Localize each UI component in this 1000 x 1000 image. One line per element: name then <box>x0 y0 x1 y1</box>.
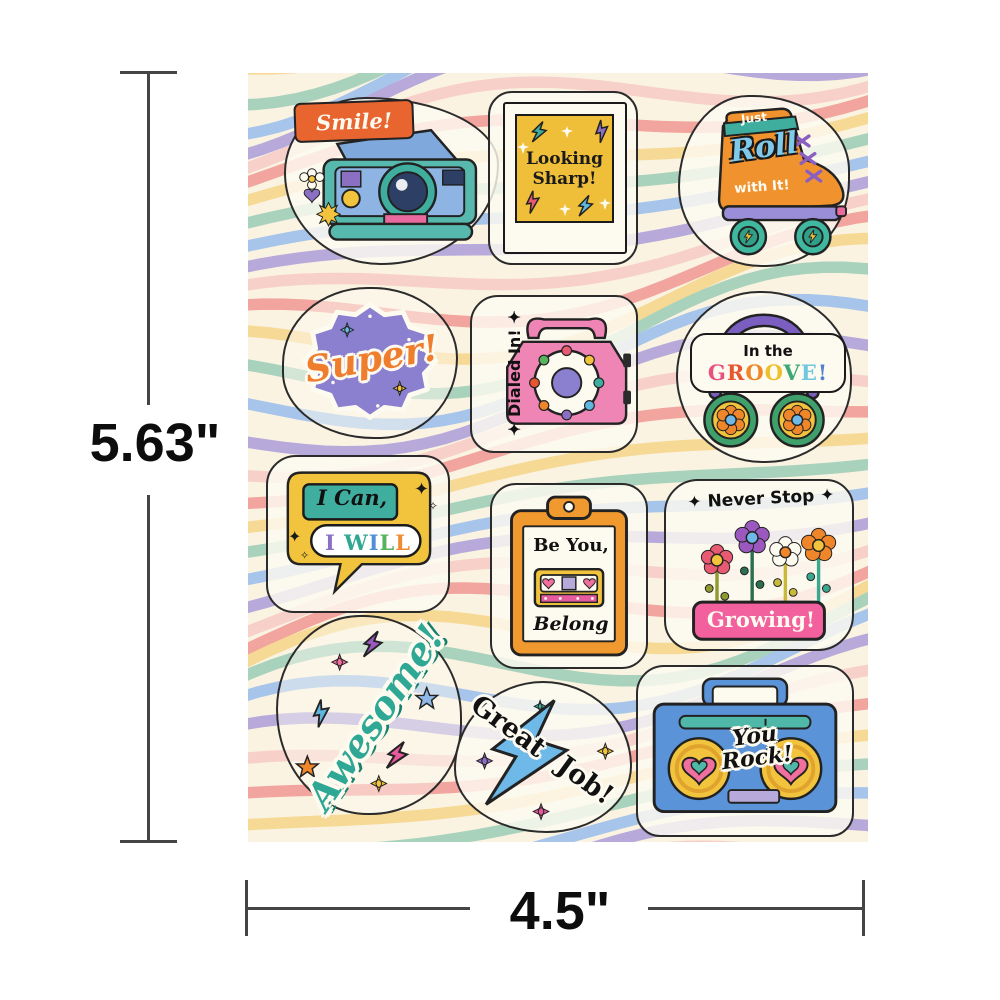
i-will-label: I WILL <box>312 532 424 553</box>
sticker-dialed-in: ✦ Dialed In! ✦ <box>470 295 638 453</box>
sticker-i-can-i-will: I Can, I WILL ✦ ✧ ✦ ✧ <box>266 455 450 613</box>
sparkle-icon: ✦ <box>687 492 702 513</box>
sticker-just-roll-with-it: Just Roll with It! <box>678 95 850 267</box>
smile-banner: Smile! <box>293 99 414 143</box>
dialed-in-label: Dialed In! <box>505 329 524 417</box>
width-dimension-line-left <box>248 907 470 910</box>
in-the-label: In the <box>743 342 793 360</box>
sparkle-icon: ✦ <box>505 310 524 323</box>
groove-label: In the GROOVE! <box>690 333 846 393</box>
sparkle-icon: ✧ <box>300 549 309 562</box>
i-can-label: I Can, <box>304 487 400 508</box>
sticker-great-job: Great Job! <box>454 681 632 833</box>
sticker-looking-sharp: Looking Sharp! <box>488 91 638 265</box>
flower-icon <box>770 537 801 566</box>
sparkle-icon: ✦ <box>288 527 301 547</box>
groove-word: GROOVE! <box>708 360 828 385</box>
flower-icon <box>801 528 835 560</box>
height-dimension-label: 5.63" <box>55 412 255 474</box>
lightning-bolt-icons <box>505 104 625 252</box>
polaroid-frame-icon: Looking Sharp! <box>503 102 627 254</box>
sticker-smile-camera: Smile! <box>284 97 499 265</box>
width-dimension-right-cap <box>862 880 865 936</box>
left-earcup-icon <box>704 394 757 447</box>
sticker-super: Super! <box>282 287 458 439</box>
sticker-you-rock: You Rock! <box>636 665 854 837</box>
rotary-phone-icon <box>472 297 636 451</box>
sparkle-icon: ✦ <box>820 485 835 506</box>
sticker-be-you-belong: Be You, Belong <box>490 483 648 669</box>
height-dimension-line-upper <box>147 73 150 405</box>
growing-label: Growing! <box>694 609 828 630</box>
height-dimension-line-lower <box>147 495 150 842</box>
sticker-in-the-groove: In the GROOVE! <box>676 291 852 463</box>
flower-icon <box>701 544 732 573</box>
sparkle-icon: ✦ <box>505 423 524 436</box>
product-image: { "dimensions": { "height_label": "5.63\… <box>0 0 1000 1000</box>
sticker-sheet: Smile! Looking Sharp! <box>248 73 868 842</box>
clipboard-icon <box>492 485 646 667</box>
right-earcup-icon <box>771 394 824 447</box>
sparkle-icon: ✦ <box>414 479 429 500</box>
flower-icon <box>735 521 769 553</box>
width-dimension-line-right <box>648 907 864 910</box>
dialed-in-label-group: ✦ Dialed In! ✦ <box>507 298 523 448</box>
width-dimension-label: 4.5" <box>480 880 640 942</box>
cassette-icon <box>535 569 603 606</box>
belong-label: Belong <box>524 615 618 634</box>
be-you-label: Be You, <box>524 537 618 555</box>
sticker-never-stop-growing: ✦ Never Stop ✦ Growing! <box>664 479 854 651</box>
sparkle-icon: ✧ <box>428 499 438 513</box>
sticker-awesome: Awesome! <box>276 615 462 815</box>
height-dimension-bottom-cap <box>120 840 177 843</box>
smile-label: Smile! <box>316 107 393 135</box>
